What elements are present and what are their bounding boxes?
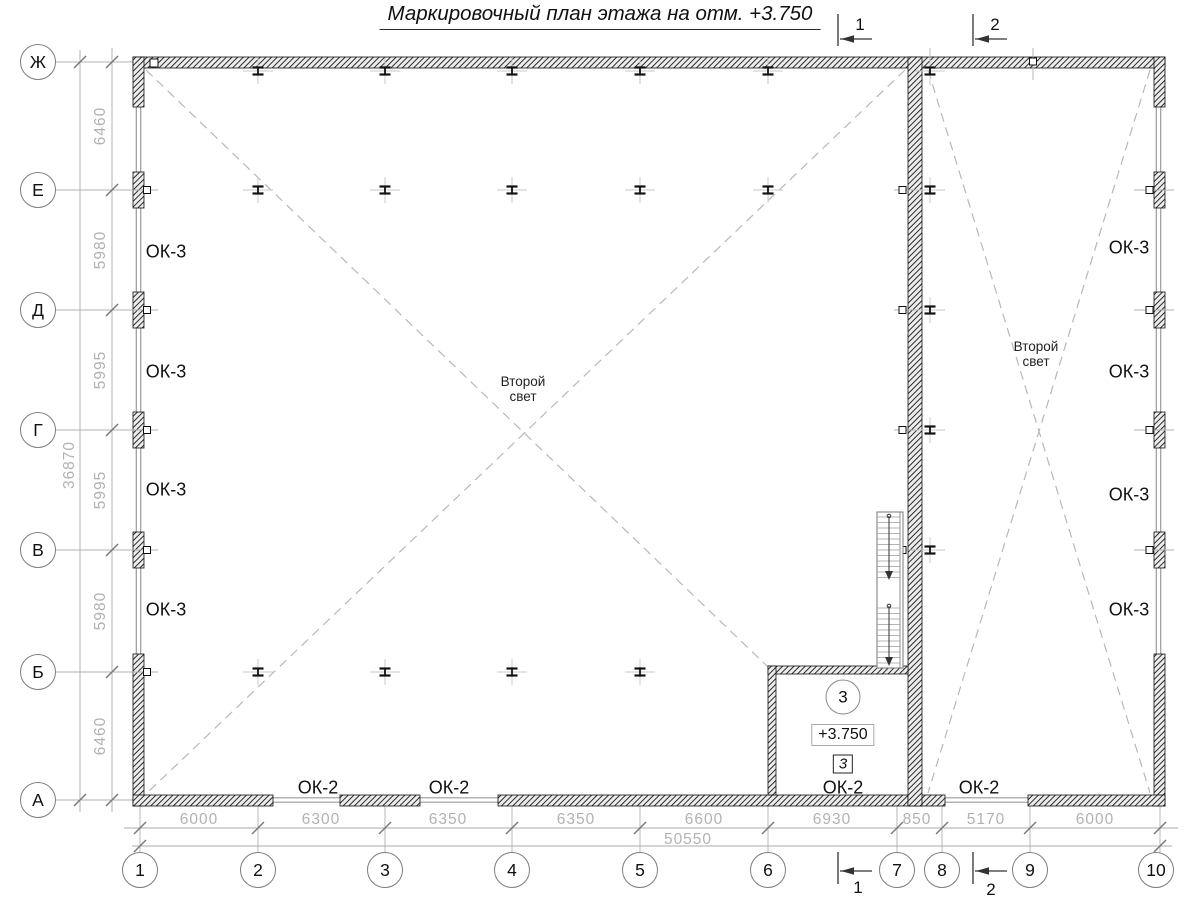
window-mark-ok3-right-3: ОК-3 bbox=[1109, 485, 1150, 506]
row-axis-Е: Е bbox=[20, 172, 56, 208]
window-mark-ok3-left-1: ОК-3 bbox=[146, 242, 187, 263]
dim-bottom-2: 6300 bbox=[302, 811, 340, 829]
dim-bottom-4: 6350 bbox=[557, 811, 595, 829]
second-light-label-right: Второй свет bbox=[1004, 339, 1068, 369]
section-2-bottom-label: 2 bbox=[986, 880, 995, 900]
col-axis-5: 5 bbox=[622, 852, 658, 888]
window-mark-ok3-left-2: ОК-3 bbox=[146, 362, 187, 383]
row-axis-Г: Г bbox=[20, 412, 56, 448]
col-axis-10: 10 bbox=[1138, 852, 1174, 888]
dim-bottom-5: 6600 bbox=[685, 811, 723, 829]
dim-bottom-6: 6930 bbox=[813, 811, 851, 829]
floor-plan-drawing bbox=[0, 0, 1200, 900]
dim-left-4: 5995 bbox=[92, 471, 110, 509]
col-axis-2: 2 bbox=[240, 852, 276, 888]
staircase bbox=[877, 512, 903, 668]
window-mark-ok2-4: ОК-2 bbox=[959, 778, 1000, 799]
col-axis-8: 8 bbox=[924, 852, 960, 888]
window-glazing bbox=[136, 107, 1160, 802]
row-axis-Б: Б bbox=[20, 654, 56, 690]
row-axis-А: А bbox=[20, 782, 56, 818]
dim-left-2: 5980 bbox=[92, 231, 110, 269]
window-mark-ok2-3: ОК-2 bbox=[823, 778, 864, 799]
window-mark-ok3-right-1: ОК-3 bbox=[1109, 238, 1150, 259]
window-mark-ok2-1: ОК-2 bbox=[298, 778, 339, 799]
window-mark-ok3-left-3: ОК-3 bbox=[146, 480, 187, 501]
section-1-top-label: 1 bbox=[855, 15, 864, 35]
dim-bottom-8: 5170 bbox=[967, 811, 1005, 829]
dim-bottom-7: 850 bbox=[903, 811, 932, 829]
row-axis-Ж: Ж bbox=[20, 44, 56, 80]
col-axis-4: 4 bbox=[494, 852, 530, 888]
dashed-cross-lines bbox=[146, 70, 1150, 794]
axis-leader-lines bbox=[55, 62, 1160, 854]
room-number-bubble: 3 bbox=[826, 680, 861, 715]
second-light-label-main: Второй свет bbox=[491, 374, 555, 404]
dim-left-total: 36870 bbox=[61, 441, 79, 489]
window-mark-ok3-right-2: ОК-3 bbox=[1109, 362, 1150, 383]
dim-left-1: 6460 bbox=[92, 107, 110, 145]
dim-left-3: 5995 bbox=[92, 351, 110, 389]
col-axis-7: 7 bbox=[879, 852, 915, 888]
section-cut-marks bbox=[838, 14, 1007, 884]
floor-plan: Маркировочный план этажа на отм. +3.750 … bbox=[0, 0, 1200, 900]
walls bbox=[133, 57, 1165, 806]
section-2-top-label: 2 bbox=[990, 15, 999, 35]
dim-bottom-9: 6000 bbox=[1076, 811, 1114, 829]
dim-left-6: 6460 bbox=[92, 717, 110, 755]
drawing-title: Маркировочный план этажа на отм. +3.750 bbox=[380, 2, 821, 30]
dim-bottom-3: 6350 bbox=[429, 811, 467, 829]
dimension-lines bbox=[80, 48, 1178, 846]
dim-bottom-1: 6000 bbox=[180, 811, 218, 829]
col-axis-1: 1 bbox=[122, 852, 158, 888]
window-mark-ok2-2: ОК-2 bbox=[429, 778, 470, 799]
col-axis-9: 9 bbox=[1012, 852, 1048, 888]
row-axis-В: В bbox=[20, 532, 56, 568]
dimension-ticks bbox=[74, 56, 1166, 852]
window-mark-ok3-left-4: ОК-3 bbox=[146, 600, 187, 621]
dim-left-5: 5980 bbox=[92, 592, 110, 630]
col-axis-6: 6 bbox=[750, 852, 786, 888]
dim-bottom-total: 50550 bbox=[664, 831, 712, 849]
room-type-mark: 3 bbox=[833, 755, 853, 774]
row-axis-Д: Д bbox=[20, 292, 56, 328]
window-mark-ok3-right-4: ОК-3 bbox=[1109, 600, 1150, 621]
section-1-bottom-label: 1 bbox=[853, 878, 862, 898]
grid-columns bbox=[243, 58, 945, 685]
room-elevation-mark: +3.750 bbox=[811, 724, 874, 746]
col-axis-3: 3 bbox=[367, 852, 403, 888]
